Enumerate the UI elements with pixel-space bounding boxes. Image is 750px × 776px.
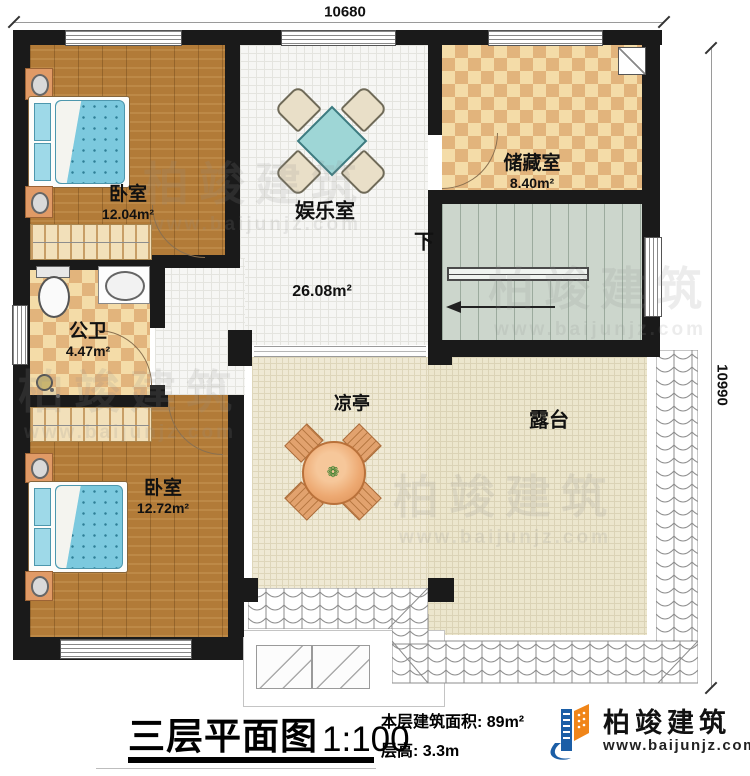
dimension-right-value: 10990 bbox=[714, 364, 731, 406]
skylight-pane bbox=[312, 645, 370, 689]
pavilion-column-nw bbox=[228, 330, 252, 366]
bed-sheet bbox=[56, 101, 87, 183]
roof-tiles-pavilion bbox=[248, 588, 428, 629]
nightstand bbox=[25, 453, 53, 483]
dimension-line-right bbox=[711, 48, 712, 688]
floor-area-text: 本层建筑面积: 89m² bbox=[381, 708, 524, 732]
room-label-pavilion: 凉亭 bbox=[334, 394, 370, 415]
room-label-entertainment: 娱乐室 bbox=[295, 201, 355, 224]
brand-name: 柏竣建筑 bbox=[603, 701, 731, 740]
dimension-top-value: 10680 bbox=[324, 4, 366, 21]
wall-bedroom1-right bbox=[225, 45, 240, 258]
plant-decoration: ❁ bbox=[327, 463, 340, 481]
door-jamb bbox=[150, 395, 168, 407]
floor-plan: 下 ❁ 柏竣建筑www.baijunjz.com 柏竣建筑www.baijunj… bbox=[0, 0, 750, 776]
bed-sheet bbox=[56, 486, 86, 568]
window-stairs-right bbox=[644, 237, 662, 317]
room-label-bathroom: 公卫 4.47m² bbox=[66, 321, 110, 359]
wall-storage-left-upper bbox=[428, 30, 442, 135]
room-label-bedroom2: 卧室 12.72m² bbox=[137, 478, 189, 516]
floor-height-text: 层高: 3.3m bbox=[381, 737, 459, 761]
window-entertainment-top bbox=[281, 30, 396, 46]
shower-spray bbox=[50, 388, 54, 392]
roof-tiles-right bbox=[656, 350, 698, 646]
storage-flue bbox=[618, 47, 646, 75]
stair-arrow-line bbox=[460, 306, 555, 308]
mattress bbox=[55, 100, 125, 184]
pavilion-column-sw bbox=[240, 578, 258, 602]
room-area-entertainment: 26.08m² bbox=[292, 283, 352, 301]
stair-arrow-head bbox=[446, 301, 461, 313]
room-label-terrace: 露台 bbox=[529, 410, 569, 433]
window-storage-top bbox=[488, 30, 603, 46]
mattress bbox=[55, 485, 123, 569]
pillow bbox=[34, 528, 51, 566]
window-bedroom1-top bbox=[65, 30, 182, 46]
room-label-storage: 储藏室 8.40m² bbox=[503, 153, 560, 191]
pavilion-column-se bbox=[428, 578, 454, 602]
plan-title-text: 三层平面图 bbox=[128, 706, 318, 760]
bed-bedroom2 bbox=[28, 481, 128, 573]
dimension-line-top bbox=[14, 22, 664, 23]
pillow bbox=[34, 143, 51, 181]
wall-storage-bottom bbox=[428, 190, 658, 204]
window-bathroom-left bbox=[12, 305, 28, 365]
pillow bbox=[34, 488, 51, 526]
brand-website: www.baijunjz.com bbox=[603, 737, 750, 754]
wall-stairs-left bbox=[428, 190, 442, 340]
nightstand bbox=[25, 186, 53, 218]
brand-logo-icon bbox=[541, 699, 599, 763]
wall-stairs-bottom bbox=[428, 340, 660, 357]
sliding-door-track bbox=[254, 346, 426, 357]
wardrobe-bedroom2 bbox=[30, 407, 152, 442]
title-underline bbox=[128, 757, 374, 763]
shower-spray bbox=[56, 394, 60, 398]
sink-basin bbox=[105, 271, 145, 301]
room-label-bedroom1: 卧室 12.04m² bbox=[102, 184, 154, 222]
terrace-floor bbox=[428, 357, 647, 635]
roof-tiles-bottom bbox=[392, 614, 698, 684]
bed-bedroom1 bbox=[28, 96, 130, 188]
plan-title: 三层平面图 1:100 bbox=[128, 706, 410, 760]
wall-bathroom-bottom bbox=[13, 395, 155, 407]
skylight-pane bbox=[256, 645, 312, 689]
wardrobe-bedroom1 bbox=[30, 224, 152, 260]
title-underline-thin bbox=[96, 768, 376, 769]
stairs-down-label: 下 bbox=[414, 226, 434, 255]
toilet bbox=[38, 276, 70, 318]
stair-handrail bbox=[447, 267, 589, 281]
window-bedroom2-bottom bbox=[60, 639, 192, 659]
pillow bbox=[34, 103, 51, 141]
nightstand bbox=[25, 571, 53, 601]
wall-bathroom-right-upper bbox=[150, 258, 165, 328]
hallway-floor bbox=[155, 258, 245, 395]
